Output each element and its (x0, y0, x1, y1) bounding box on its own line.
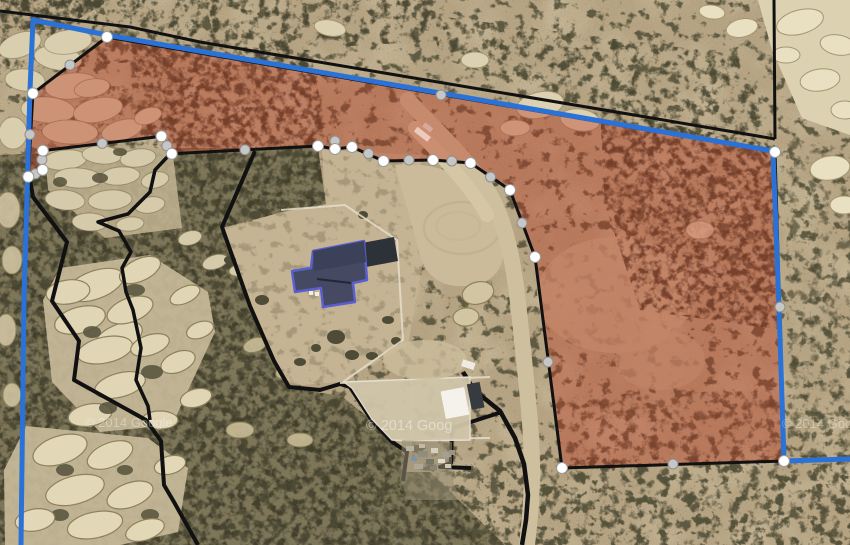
svg-text:© 2014 Goog: © 2014 Goog (366, 418, 452, 434)
svg-text:© 2014 Google: © 2014 Google (85, 415, 173, 430)
svg-text:© 2014 Goo: © 2014 Goo (782, 416, 850, 431)
